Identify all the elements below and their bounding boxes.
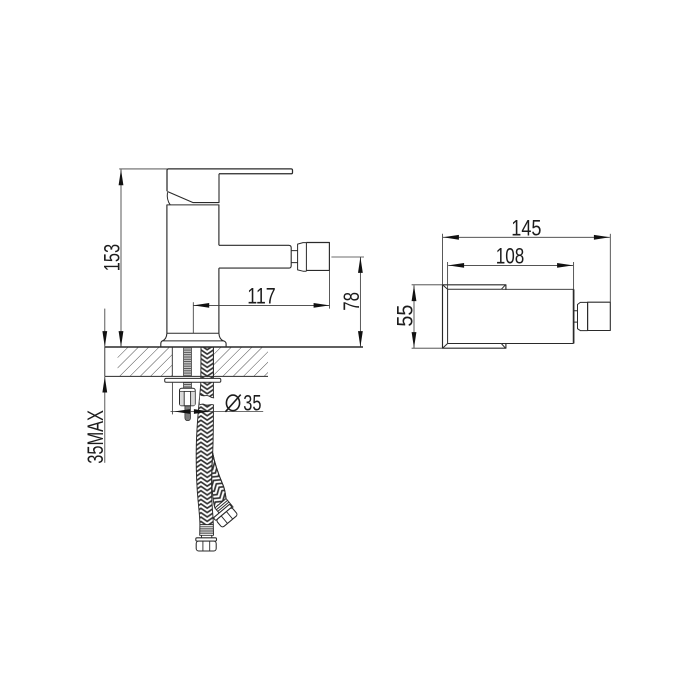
svg-text:108: 108 [496,243,525,268]
svg-text:117: 117 [247,284,276,309]
svg-text:55: 55 [392,305,417,327]
svg-text:78: 78 [339,292,364,311]
svg-text:153: 153 [99,244,124,271]
svg-text:35MAX: 35MAX [83,410,108,464]
svg-text:35: 35 [243,390,261,415]
svg-text:145: 145 [511,215,541,240]
